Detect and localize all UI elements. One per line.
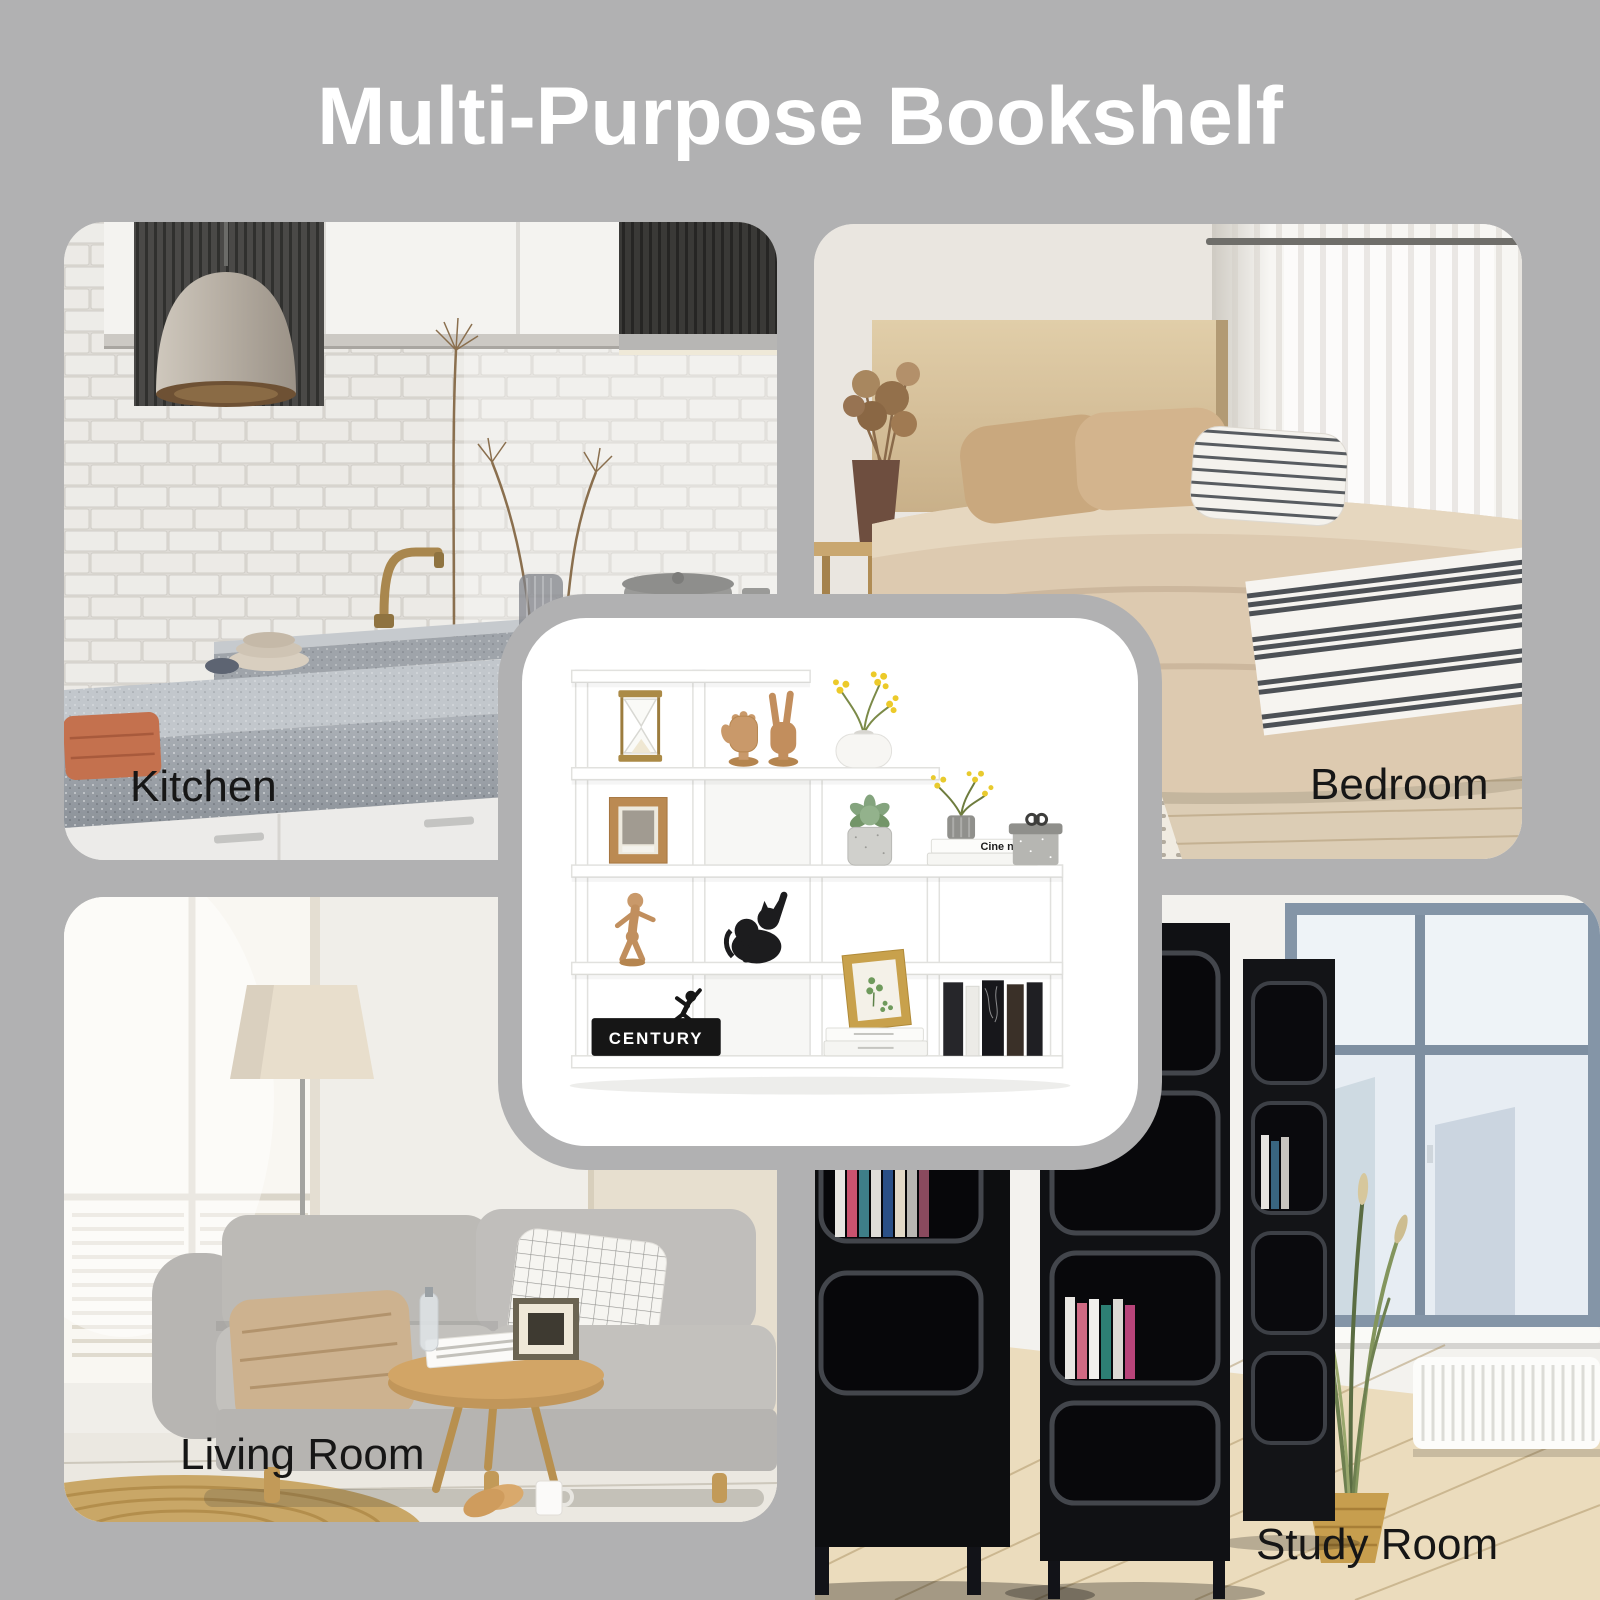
kitchen-dark-cabinet-right — [619, 222, 777, 355]
books-row — [1261, 1135, 1289, 1209]
page-title: Multi-Purpose Bookshelf — [0, 70, 1600, 164]
vase-with-yellow-flowers — [833, 671, 899, 767]
wooden-hands-decor — [719, 694, 799, 767]
livingroom-label: Living Room — [180, 1430, 425, 1480]
bookend-text: CENTURY — [609, 1029, 704, 1048]
black-cat-figurine — [726, 891, 788, 964]
radiator — [1413, 1357, 1600, 1457]
gift-box — [1009, 814, 1063, 865]
water-bottle — [420, 1293, 438, 1351]
bedroom-label: Bedroom — [1310, 760, 1489, 810]
succulent-plant — [847, 795, 892, 866]
bookshelf-unit-3 — [1243, 959, 1335, 1521]
poster-canvas: Multi-Purpose Bookshelf — [0, 0, 1600, 1600]
beige-throw — [228, 1289, 416, 1427]
kitchen-label: Kitchen — [130, 762, 277, 812]
wooden-mannequin — [617, 893, 653, 967]
black-books-row — [943, 980, 1042, 1056]
hourglass-decor — [618, 690, 662, 762]
studyroom-label: Study Room — [1256, 1520, 1498, 1570]
product-card: Cine noi ? CENTURY — [498, 594, 1162, 1170]
bookshelf-product-illustration: Cine noi ? CENTURY — [526, 620, 1134, 1138]
wooden-picture-frame — [609, 798, 667, 864]
